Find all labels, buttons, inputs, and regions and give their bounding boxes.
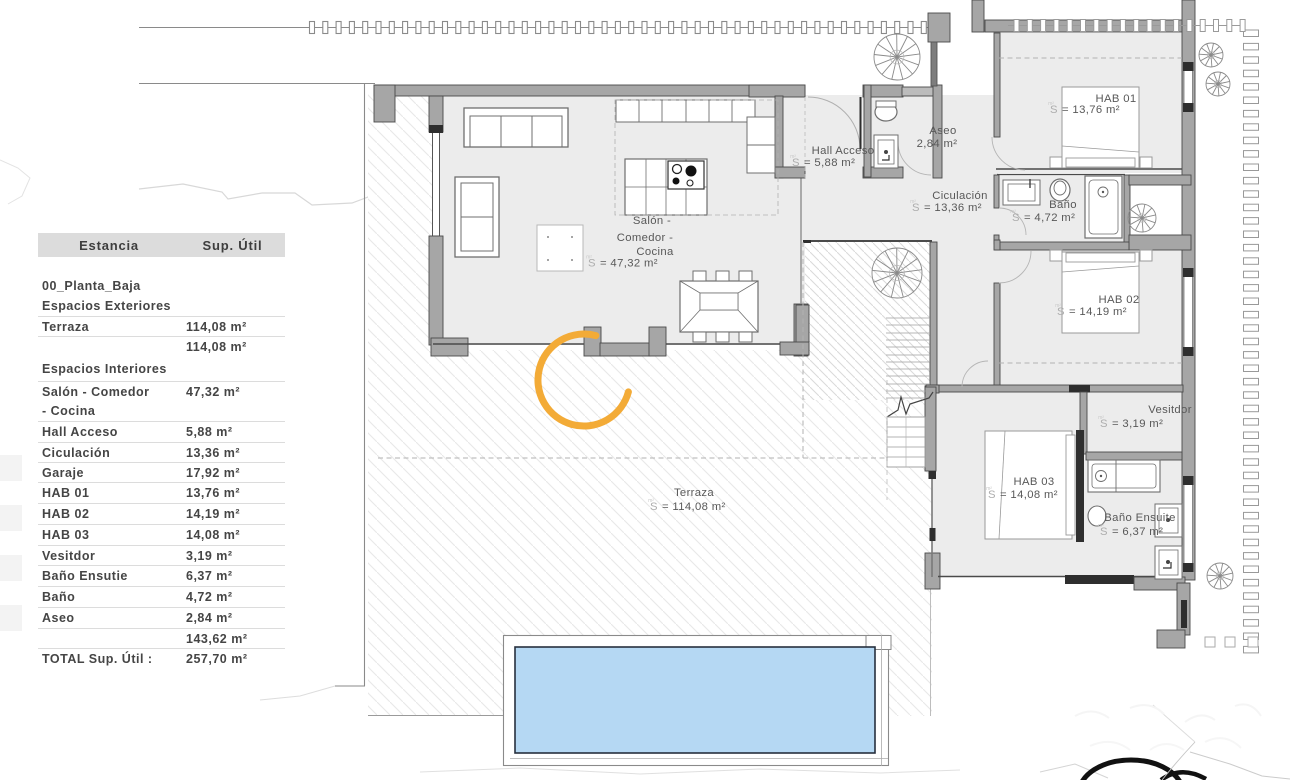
- svg-text:Comedor -: Comedor -: [617, 232, 674, 244]
- svg-text:Hall Acceso: Hall Acceso: [812, 145, 875, 157]
- svg-text:Baño Ensuite: Baño Ensuite: [1104, 512, 1175, 524]
- svg-text:m²: m²: [1098, 523, 1104, 529]
- svg-text:= 13,76 m²: = 13,76 m²: [1062, 104, 1120, 116]
- svg-text:= 14,08 m²: = 14,08 m²: [1000, 489, 1058, 501]
- svg-text:= 13,36 m²: = 13,36 m²: [924, 202, 982, 214]
- svg-text:2,84 m²: 2,84 m²: [917, 138, 958, 150]
- svg-text:m²: m²: [910, 199, 916, 205]
- svg-text:= 114,08 m²: = 114,08 m²: [662, 501, 726, 513]
- svg-text:= 6,37 m²: = 6,37 m²: [1112, 526, 1163, 538]
- svg-text:Ciculación: Ciculación: [932, 190, 988, 202]
- svg-text:= 4,72 m²: = 4,72 m²: [1024, 212, 1075, 224]
- svg-text:Cocina: Cocina: [636, 246, 674, 258]
- svg-text:= 5,88 m²: = 5,88 m²: [804, 157, 855, 169]
- svg-text:Vesitdor: Vesitdor: [1148, 404, 1192, 416]
- svg-text:= 3,19 m²: = 3,19 m²: [1112, 418, 1163, 430]
- svg-text:m²: m²: [790, 154, 796, 160]
- svg-text:m²: m²: [1010, 209, 1016, 215]
- svg-text:Aseo: Aseo: [929, 125, 956, 137]
- svg-text:HAB 02: HAB 02: [1098, 294, 1139, 306]
- svg-text:HAB 03: HAB 03: [1013, 476, 1054, 488]
- svg-text:Terraza: Terraza: [674, 487, 714, 499]
- svg-text:= 47,32 m²: = 47,32 m²: [600, 258, 658, 270]
- svg-text:m²: m²: [1055, 303, 1061, 309]
- svg-text:m²: m²: [586, 255, 592, 261]
- svg-text:m²: m²: [648, 498, 654, 504]
- svg-text:Baño: Baño: [1049, 199, 1077, 211]
- svg-text:Salón -: Salón -: [633, 215, 671, 227]
- svg-text:= 14,19 m²: = 14,19 m²: [1069, 306, 1127, 318]
- svg-text:m²: m²: [1098, 415, 1104, 421]
- svg-text:m²: m²: [1048, 101, 1054, 107]
- svg-text:m²: m²: [986, 486, 992, 492]
